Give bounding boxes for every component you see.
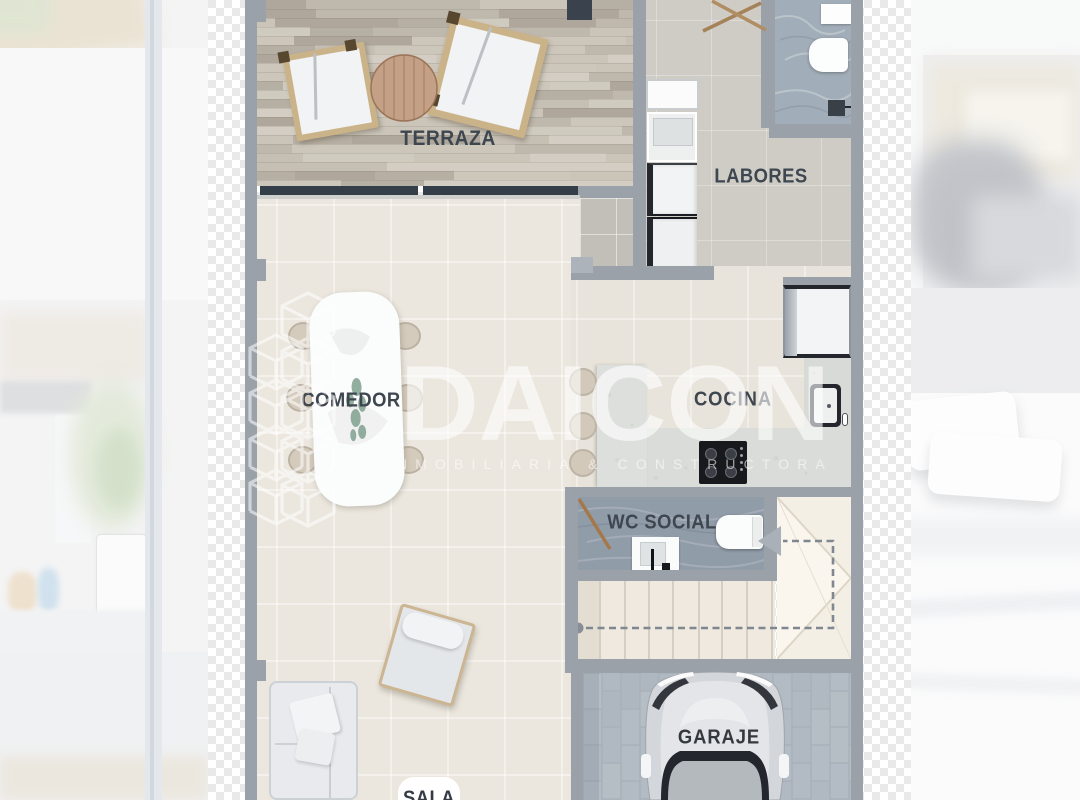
svg-text:DAICON: DAICON — [400, 343, 830, 463]
svg-text:INMOBILIARIA & CONSTRUCTORA: INMOBILIARIA & CONSTRUCTORA — [385, 457, 833, 472]
